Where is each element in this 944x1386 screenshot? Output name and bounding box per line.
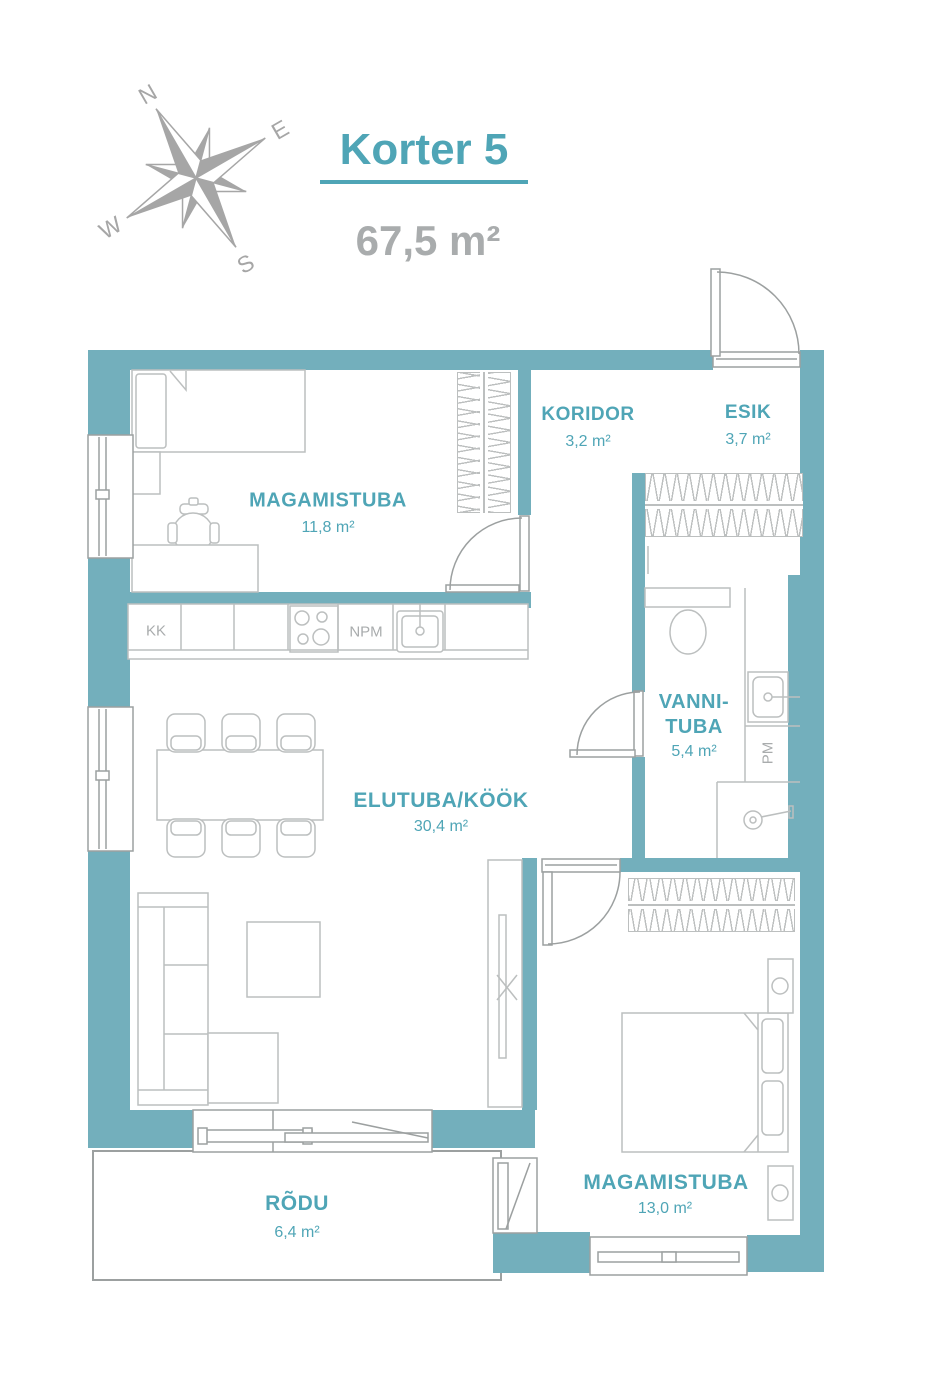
tv-bench (488, 860, 522, 1107)
room-name-elutuba: ELUTUBA/KÖÖK (353, 788, 528, 814)
toilet (645, 588, 730, 654)
kitchen-counter (128, 604, 528, 659)
room-name-koridor: KORIDOR (541, 403, 634, 427)
nightstand-bedroom2-top (768, 959, 793, 1013)
balcony-end-window (493, 1158, 537, 1233)
floor-plan-page: N E S W Korter 5 67,5 m² (0, 0, 944, 1386)
compass-south-label: S (232, 249, 258, 279)
room-area-magamistuba1: 11,8 m² (301, 519, 354, 537)
title-underline (320, 180, 528, 184)
room-area-vannituba: 5,4 m² (671, 743, 716, 761)
bedroom2-door (542, 859, 620, 945)
sliding-balcony-door (193, 1110, 432, 1152)
room-area-rodu: 6,4 m² (274, 1224, 319, 1242)
room-area-magamistuba2: 13,0 m² (638, 1200, 692, 1218)
bathroom-label-pm: PM (760, 742, 777, 765)
room-name-magamistuba2: MAGAMISTUBA (583, 1170, 748, 1196)
window-living (88, 707, 133, 851)
nightstand-bedroom2-bottom (768, 1166, 793, 1220)
bedroom1-door (446, 516, 529, 592)
compass-east-label: E (267, 114, 293, 144)
bathroom-sink (748, 672, 800, 722)
compass-star-major (87, 69, 306, 284)
room-area-koridor: 3,2 m² (565, 433, 610, 451)
entry-door (711, 269, 800, 367)
room-name-vannituba: VANNI-TUBA (639, 690, 749, 740)
desk (132, 545, 258, 592)
kitchen-sink (397, 604, 443, 652)
room-name-esik: ESIK (725, 401, 771, 425)
room-name-rodu: RÕDU (265, 1191, 329, 1217)
window-bedroom2 (590, 1237, 747, 1275)
coffee-table (247, 922, 320, 997)
tv (499, 915, 506, 1058)
compass-rose: N E S W (85, 62, 307, 284)
compass-west-label: W (94, 211, 126, 245)
room-area-esik: 3,7 m² (725, 431, 770, 449)
room-name-magamistuba1: MAGAMISTUBA (249, 489, 407, 514)
kitchen-label-kk: KK (146, 623, 166, 640)
compass-north-label: N (134, 79, 161, 110)
shower-head (744, 806, 793, 829)
double-bed (622, 1013, 788, 1152)
total-area: 67,5 m² (356, 217, 501, 265)
dining-table (157, 750, 323, 820)
kitchen-label-npm: NPM (349, 624, 382, 641)
page-title: Korter 5 (340, 125, 509, 175)
room-area-elutuba: 30,4 m² (414, 818, 468, 836)
nightstand-bedroom1 (132, 452, 160, 494)
single-bed (132, 370, 305, 452)
bathroom-door (570, 691, 643, 757)
window-bedroom1 (88, 435, 133, 558)
